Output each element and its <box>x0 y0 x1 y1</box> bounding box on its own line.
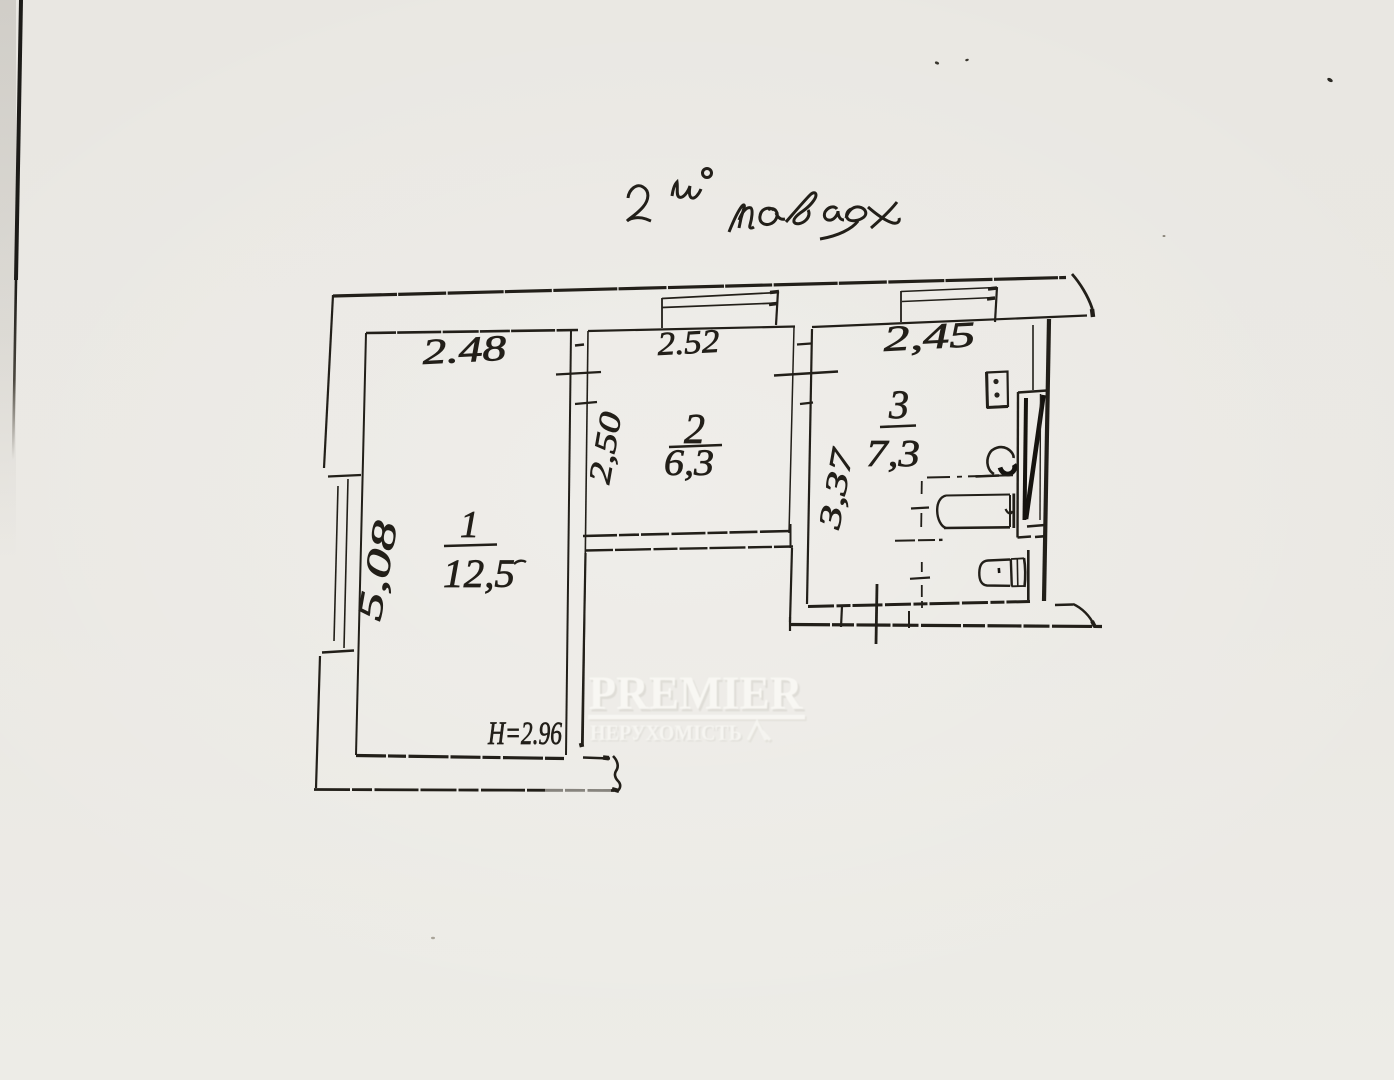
svg-text:3,37: 3,37 <box>811 444 860 532</box>
svg-text:НЕРУХОМІСТЬ: НЕРУХОМІСТЬ <box>590 720 742 745</box>
svg-text:PREMIER: PREMIER <box>589 667 804 720</box>
svg-text:2,50: 2,50 <box>581 409 628 487</box>
svg-text:5,08: 5,08 <box>349 517 405 623</box>
svg-text:2.52: 2.52 <box>657 324 721 363</box>
svg-text:3: 3 <box>888 382 909 427</box>
svg-text:12,5: 12,5 <box>443 551 515 596</box>
svg-text:7,3: 7,3 <box>866 433 920 475</box>
svg-text:6,3: 6,3 <box>664 443 714 484</box>
svg-text:2,45: 2,45 <box>882 314 976 359</box>
svg-text:H=2.96: H=2.96 <box>487 716 562 752</box>
svg-text:2.48: 2.48 <box>421 328 507 372</box>
svg-text:1: 1 <box>460 504 479 546</box>
